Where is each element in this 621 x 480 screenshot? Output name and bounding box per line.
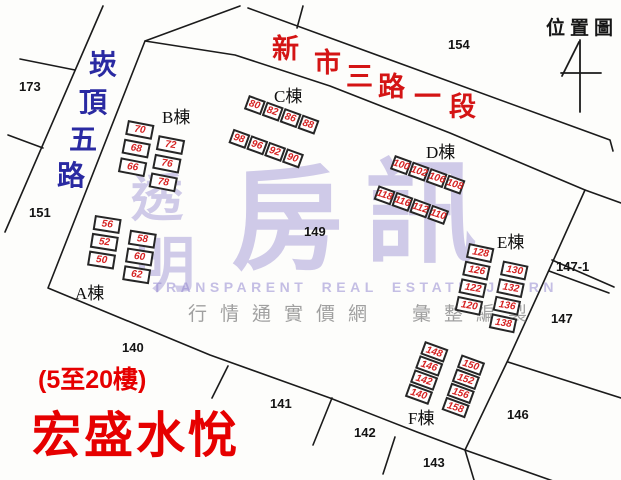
building-B-tower: 727678 [149, 135, 186, 192]
building-F-tower: 150152156158 [441, 354, 485, 418]
unit-number: 56 [101, 218, 113, 230]
unit-number: 98 [232, 132, 246, 146]
unit-cell: 78 [149, 172, 178, 192]
unit-cell: 122 [458, 278, 487, 298]
unit-number: 138 [494, 317, 512, 330]
unit-cell: 138 [489, 313, 518, 333]
unit-number: 60 [133, 251, 145, 263]
unit-number: 128 [471, 246, 489, 259]
unit-cell: 68 [122, 139, 151, 159]
unit-cell: 108 [443, 174, 465, 194]
unit-number: 108 [445, 177, 464, 192]
unit-cell: 56 [93, 215, 122, 234]
unit-number: 106 [427, 170, 446, 185]
unit-number: 88 [302, 118, 316, 132]
legend-title: 位置圖 [546, 13, 618, 40]
building-B-tower: 706866 [118, 120, 155, 177]
building-A-tower: 586062 [122, 230, 157, 285]
unit-cell: 66 [118, 157, 147, 177]
unit-number: 80 [248, 98, 262, 112]
unit-number: 52 [98, 236, 110, 248]
project-name: 宏盛水悅 [32, 396, 240, 467]
unit-number: 132 [501, 281, 519, 294]
unit-number: 102 [409, 164, 428, 179]
unit-cell: 60 [125, 247, 154, 266]
unit-cell: 70 [125, 120, 154, 140]
unit-number: 116 [393, 194, 411, 209]
unit-cell: 52 [90, 233, 119, 252]
unit-number: 82 [266, 105, 280, 119]
unit-number: 86 [284, 111, 298, 125]
unit-number: 126 [467, 264, 485, 277]
unit-number: 58 [136, 233, 148, 245]
building-D-tower: 118116112110 [374, 185, 450, 225]
unit-cell: 128 [466, 243, 495, 263]
unit-number: 118 [375, 188, 393, 203]
unit-number: 122 [464, 282, 482, 295]
unit-number: 68 [130, 142, 143, 154]
building-C-tower: 98969290 [228, 129, 304, 169]
building-D-tower: 100102106108 [390, 155, 466, 195]
unit-cell: 130 [500, 260, 529, 280]
floors-note: (5至20樓) [38, 360, 146, 396]
unit-number: 50 [95, 254, 107, 266]
unit-cell: 50 [87, 251, 116, 270]
unit-cell: 90 [282, 148, 304, 168]
unit-cell: 88 [297, 114, 319, 134]
unit-cell: 136 [493, 296, 522, 316]
unit-number: 120 [460, 299, 478, 312]
unit-number: 76 [161, 157, 174, 169]
unit-number: 110 [429, 207, 447, 222]
unit-number: 72 [164, 139, 177, 151]
building-F-tower: 148146142140 [405, 341, 449, 405]
unit-number: 112 [411, 201, 429, 216]
unit-number: 92 [268, 145, 282, 159]
unit-number: 78 [157, 176, 170, 188]
unit-cell: 126 [462, 261, 491, 281]
unit-number: 70 [134, 124, 147, 136]
unit-number: 62 [131, 269, 143, 281]
unit-number: 90 [286, 151, 300, 165]
unit-cell: 110 [427, 205, 449, 225]
building-E-tower: 130132136138 [489, 260, 529, 333]
unit-number: 158 [446, 400, 465, 415]
building-A-tower: 565250 [87, 215, 122, 270]
building-C-tower: 80828688 [244, 95, 320, 135]
unit-number: 130 [505, 264, 523, 277]
building-E-tower: 128126122120 [455, 243, 495, 316]
unit-number: 100 [391, 157, 410, 172]
unit-number: 136 [498, 299, 516, 312]
unit-cell: 76 [152, 154, 181, 174]
site-location-map: TRANSPARENT REAL ESTATE JOURN 行情通實價網 彙整編… [0, 0, 621, 480]
unit-number: 66 [126, 161, 139, 173]
unit-cell: 72 [156, 135, 185, 155]
unit-number: 140 [409, 386, 428, 401]
unit-cell: 62 [122, 265, 151, 284]
unit-cell: 58 [128, 230, 157, 249]
unit-number: 96 [250, 138, 264, 152]
unit-cell: 132 [496, 278, 525, 298]
unit-cell: 120 [455, 296, 484, 316]
